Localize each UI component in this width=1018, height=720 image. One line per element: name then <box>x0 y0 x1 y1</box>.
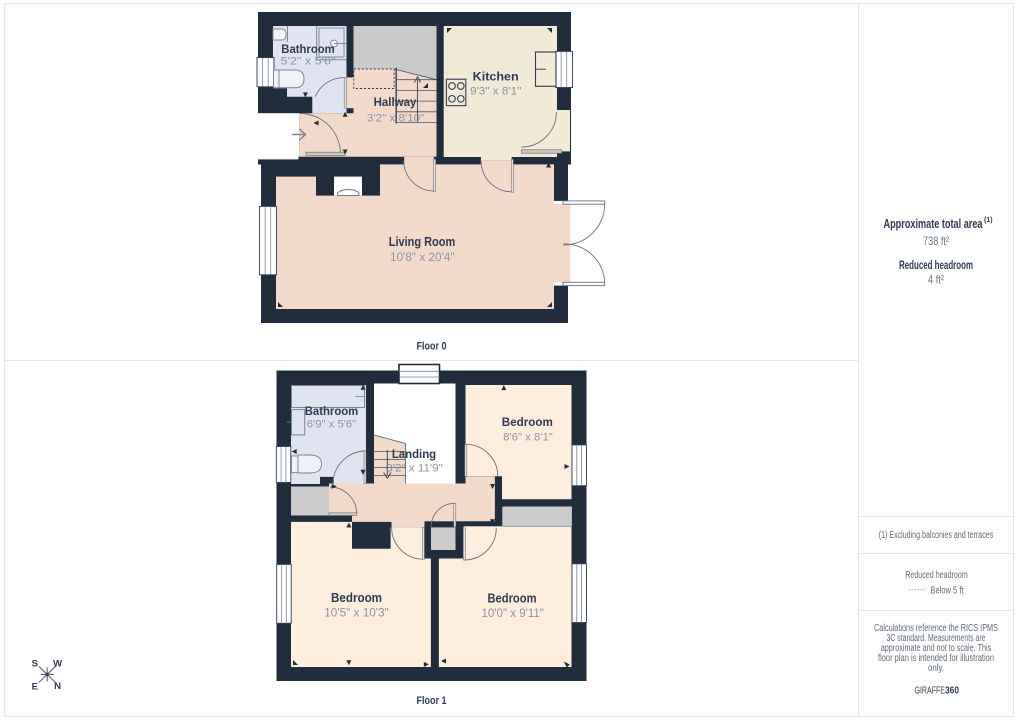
svg-text:only.: only. <box>928 663 944 674</box>
svg-text:Reduced headroom: Reduced headroom <box>899 258 973 272</box>
svg-text:9'3" x 8'1": 9'3" x 8'1" <box>470 86 522 98</box>
svg-text:5'2" x 5'6": 5'2" x 5'6" <box>281 56 336 68</box>
svg-text:10'5" x 10'3": 10'5" x 10'3" <box>324 608 389 620</box>
svg-text:738 ft²: 738 ft² <box>923 234 949 248</box>
svg-text:(1): (1) <box>984 217 993 224</box>
svg-text:GIRAFFE: GIRAFFE <box>915 686 946 697</box>
svg-text:10'0" x 9'11": 10'0" x 9'11" <box>482 608 544 620</box>
svg-text:W: W <box>53 659 62 670</box>
svg-text:6'9" x 5'6": 6'9" x 5'6" <box>307 419 357 431</box>
svg-text:Floor 0: Floor 0 <box>417 341 447 353</box>
svg-text:Hallway: Hallway <box>374 95 417 109</box>
svg-text:Reduced headroom: Reduced headroom <box>905 569 968 581</box>
svg-text:8'6" x 8'1": 8'6" x 8'1" <box>503 432 553 444</box>
svg-text:Kitchen: Kitchen <box>473 70 519 84</box>
svg-text:Floor 1: Floor 1 <box>417 695 447 707</box>
svg-text:Bedroom: Bedroom <box>331 591 382 605</box>
svg-text:360: 360 <box>945 686 959 697</box>
svg-text:E: E <box>32 682 38 693</box>
svg-text:Approximate total area: Approximate total area <box>884 216 984 231</box>
svg-text:Bedroom: Bedroom <box>502 415 553 429</box>
svg-text:Bathroom: Bathroom <box>305 406 359 418</box>
svg-text:N: N <box>54 681 61 692</box>
svg-text:S: S <box>32 659 38 670</box>
svg-text:Below 5 ft: Below 5 ft <box>931 585 964 597</box>
svg-text:Living Room: Living Room <box>389 235 456 249</box>
svg-text:Bedroom: Bedroom <box>488 592 537 606</box>
svg-text:3'2" x 8'10": 3'2" x 8'10" <box>367 113 424 125</box>
svg-text:(1) Excluding balconies and te: (1) Excluding balconies and terraces <box>879 530 994 541</box>
svg-text:10'8" x 20'4": 10'8" x 20'4" <box>390 252 455 264</box>
svg-text:Landing: Landing <box>392 447 436 461</box>
svg-text:3'2" x 11'9": 3'2" x 11'9" <box>386 462 443 474</box>
svg-text:4 ft²: 4 ft² <box>928 273 944 287</box>
svg-text:Bathroom: Bathroom <box>281 44 334 56</box>
